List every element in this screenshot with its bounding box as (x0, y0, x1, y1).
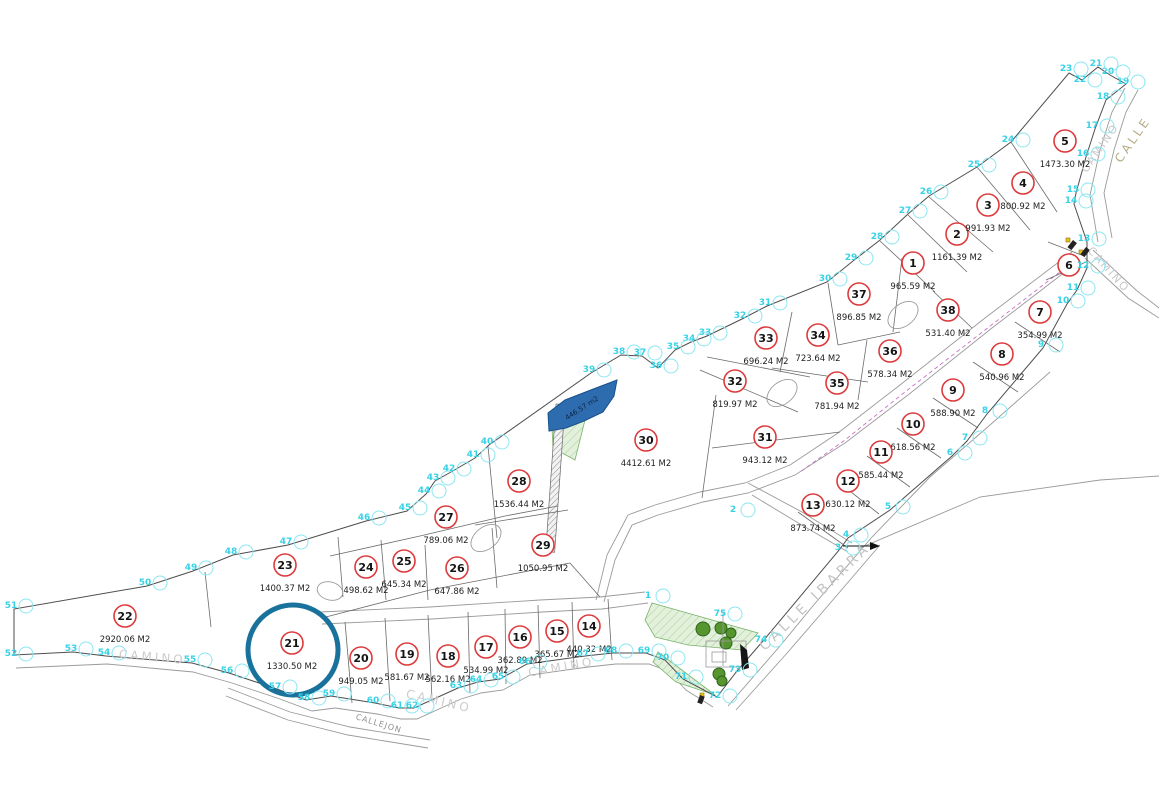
lot-marker-20[interactable]: 20949.05 M2 (338, 647, 383, 687)
vertex-number-1: 1 (645, 591, 651, 601)
lot-marker-34[interactable]: 34723.64 M2 (795, 324, 840, 364)
vertex-number-52: 52 (5, 649, 18, 659)
lot-marker-18[interactable]: 18562.16 M2 (425, 645, 470, 685)
vertex-point-68: 68 (605, 644, 633, 658)
lot-marker-1[interactable]: 1965.59 M2 (890, 252, 935, 292)
lot-marker-25[interactable]: 25645.34 M2 (381, 550, 426, 590)
lot-area-30: 4412.61 M2 (621, 459, 672, 469)
vertex-point-23: 23 (1060, 62, 1088, 76)
vertex-number-57: 57 (269, 682, 282, 692)
vertex-point-42: 42 (443, 462, 471, 476)
vertex-ring-25 (982, 158, 996, 172)
lot-number-26: 26 (449, 562, 465, 575)
lot-number-5: 5 (1061, 135, 1069, 148)
vertex-point-40: 40 (481, 435, 509, 449)
vertex-number-11: 11 (1067, 283, 1080, 293)
culdesac-1 (762, 374, 802, 412)
vertex-number-22: 22 (1074, 75, 1087, 85)
vertex-number-68: 68 (605, 646, 618, 656)
vertex-ring-27 (913, 204, 927, 218)
lot-line-35 (570, 563, 600, 597)
vertex-number-65: 65 (492, 672, 505, 682)
vertex-point-75: 75 (714, 607, 742, 621)
lot-number-13: 13 (805, 499, 820, 512)
lot-number-14: 14 (581, 620, 597, 633)
street-label-1: CALLE (1112, 114, 1154, 165)
lot-marker-30[interactable]: 304412.61 M2 (621, 429, 672, 469)
lamp-marker-0 (1066, 238, 1070, 242)
vertex-point-24: 24 (1002, 133, 1030, 147)
vertex-number-49: 49 (185, 563, 198, 573)
vertex-number-25: 25 (968, 160, 981, 170)
parcel-map: 446.57 m2CAMINOCALLECAMINOCALLE IBARRACA… (0, 0, 1159, 805)
vertex-ring-55 (198, 653, 212, 667)
road-line-2 (596, 515, 628, 600)
lot-area-27: 789.06 M2 (423, 536, 468, 546)
lot-marker-26[interactable]: 26647.86 M2 (434, 557, 479, 597)
vertex-number-12: 12 (1077, 261, 1090, 271)
map-canvas: 446.57 m2CAMINOCALLECAMINOCALLE IBARRACA… (0, 0, 1159, 805)
vertex-number-73: 73 (729, 665, 742, 675)
vertex-point-49: 49 (185, 561, 213, 575)
vertex-ring-24 (1016, 133, 1030, 147)
vertex-point-14: 14 (1065, 194, 1093, 208)
lot-marker-21[interactable]: 211330.50 M2 (267, 632, 318, 672)
junction-arrow-head (870, 542, 880, 550)
lot-area-19: 581.67 M2 (384, 673, 429, 683)
lot-area-32: 819.97 M2 (712, 400, 757, 410)
vertex-number-72: 72 (709, 691, 722, 701)
lot-marker-38[interactable]: 38531.40 M2 (925, 299, 970, 339)
lot-number-20: 20 (353, 652, 369, 665)
lot-marker-9[interactable]: 9588.90 M2 (930, 379, 975, 419)
vertex-ring-4 (854, 528, 868, 542)
vertex-number-27: 27 (899, 206, 912, 216)
vertex-number-5: 5 (885, 502, 891, 512)
vertex-number-36: 36 (650, 361, 663, 371)
vertex-ring-45 (413, 501, 427, 515)
lot-number-15: 15 (549, 625, 564, 638)
lot-area-11: 585.44 M2 (858, 471, 903, 481)
vertex-point-2: 2 (730, 503, 755, 517)
lot-number-4: 4 (1019, 177, 1027, 190)
lot-area-26: 647.86 M2 (434, 587, 479, 597)
vertex-ring-29 (859, 251, 873, 265)
vertex-number-15: 15 (1067, 185, 1080, 195)
lot-number-36: 36 (882, 345, 898, 358)
vertex-number-58: 58 (298, 693, 311, 703)
vertex-point-18: 18 (1097, 90, 1125, 104)
street-label-3: CALLE IBARRA (756, 540, 874, 654)
vertex-ring-30 (833, 272, 847, 286)
vertex-number-3: 3 (835, 543, 841, 553)
lot-marker-8[interactable]: 8540.96 M2 (979, 343, 1024, 383)
vertex-point-45: 45 (399, 501, 427, 515)
vertex-point-4: 4 (843, 528, 868, 542)
tree-icon-2 (726, 628, 736, 638)
vertex-number-30: 30 (819, 274, 832, 284)
vertex-point-25: 25 (968, 158, 996, 172)
lot-line-38 (428, 615, 432, 699)
vertex-number-63: 63 (450, 681, 463, 691)
vertex-ring-5 (896, 500, 910, 514)
lot-line-30 (425, 545, 428, 600)
vertex-number-45: 45 (399, 503, 412, 513)
vertex-number-10: 10 (1057, 296, 1070, 306)
lot-marker-3[interactable]: 3991.93 M2 (965, 194, 1010, 234)
vertex-number-28: 28 (871, 232, 884, 242)
road-line-6 (728, 372, 1050, 706)
vertex-number-56: 56 (221, 666, 234, 676)
lot-number-10: 10 (905, 418, 921, 431)
lot-area-3: 991.93 M2 (965, 224, 1010, 234)
vertex-number-70: 70 (657, 653, 670, 663)
vertex-point-6: 6 (947, 446, 972, 460)
vertex-number-54: 54 (98, 648, 111, 658)
vertex-point-8: 8 (982, 404, 1007, 418)
lot-area-33: 696.24 M2 (743, 357, 788, 367)
lot-number-2: 2 (953, 228, 961, 241)
culdesac-2 (466, 519, 506, 557)
vertex-ring-11 (1081, 281, 1095, 295)
lot-area-36: 578.34 M2 (867, 370, 912, 380)
vertex-number-24: 24 (1002, 135, 1015, 145)
tree-icon-3 (720, 637, 732, 649)
vertex-number-62: 62 (406, 701, 419, 711)
lot-number-32: 32 (727, 375, 742, 388)
vertex-number-47: 47 (280, 537, 293, 547)
lot-number-6: 6 (1065, 259, 1073, 272)
vertex-point-31: 31 (759, 296, 787, 310)
lot-marker-32[interactable]: 32819.97 M2 (712, 370, 757, 410)
street-label-4: CAMINO (118, 647, 186, 667)
vertex-number-66: 66 (519, 657, 532, 667)
vertex-number-35: 35 (667, 342, 680, 352)
lot-line-6 (893, 258, 902, 332)
lot-marker-24[interactable]: 24498.62 M2 (343, 556, 388, 596)
vertex-number-48: 48 (225, 547, 238, 557)
vertex-point-41: 41 (467, 448, 495, 462)
lot-number-19: 19 (399, 648, 414, 661)
vertex-number-44: 44 (418, 486, 431, 496)
vertex-number-50: 50 (139, 578, 152, 588)
vertex-point-10: 10 (1057, 294, 1085, 308)
lot-line-11 (858, 340, 867, 400)
vertex-ring-57 (283, 680, 297, 694)
lot-area-28: 1536.44 M2 (494, 500, 545, 510)
vertex-point-19: 19 (1117, 75, 1145, 89)
lot-area-13: 873.74 M2 (790, 524, 835, 534)
vertex-number-42: 42 (443, 464, 456, 474)
vertex-number-55: 55 (184, 655, 197, 665)
lot-marker-7[interactable]: 7354.99 M2 (1017, 301, 1062, 341)
lot-number-27: 27 (438, 511, 453, 524)
lot-number-24: 24 (358, 561, 374, 574)
lot-area-5: 1473.30 M2 (1040, 160, 1091, 170)
vertex-ring-22 (1088, 73, 1102, 87)
vertex-number-4: 4 (843, 530, 849, 540)
vertex-number-31: 31 (759, 298, 772, 308)
vertex-point-46: 46 (358, 511, 386, 525)
lot-number-11: 11 (873, 446, 888, 459)
vertex-point-56: 56 (221, 664, 249, 678)
vertex-ring-2 (741, 503, 755, 517)
lot-marker-35[interactable]: 35781.94 M2 (814, 372, 859, 412)
vertex-ring-75 (728, 607, 742, 621)
vertex-ring-59 (337, 687, 351, 701)
vertex-number-60: 60 (367, 696, 380, 706)
vertex-number-39: 39 (583, 365, 596, 375)
lot-number-35: 35 (829, 377, 844, 390)
vertex-ring-56 (235, 664, 249, 678)
lot-number-21: 21 (284, 637, 299, 650)
lot-marker-29[interactable]: 291050.95 M2 (518, 534, 569, 574)
vertex-number-6: 6 (947, 448, 953, 458)
lot-area-1: 965.59 M2 (890, 282, 935, 292)
vertex-ring-15 (1081, 183, 1095, 197)
lot-area-25: 645.34 M2 (381, 580, 426, 590)
vertex-ring-18 (1111, 90, 1125, 104)
lot-area-18: 562.16 M2 (425, 675, 470, 685)
lot-number-29: 29 (535, 539, 550, 552)
vertex-number-21: 21 (1090, 59, 1103, 69)
lot-marker-28[interactable]: 281536.44 M2 (494, 470, 545, 510)
vertex-number-69: 69 (638, 646, 651, 656)
lot-area-21: 1330.50 M2 (267, 662, 318, 672)
vertex-point-39: 39 (583, 363, 611, 377)
lot-number-1: 1 (909, 257, 917, 270)
vertex-ring-73 (743, 663, 757, 677)
culdesac-0 (883, 296, 923, 334)
vertex-number-74: 74 (755, 635, 768, 645)
vertex-point-13: 13 (1078, 232, 1106, 246)
lot-number-16: 16 (512, 631, 528, 644)
vertex-number-46: 46 (358, 513, 371, 523)
building-marker-2 (697, 695, 704, 704)
vertex-point-30: 30 (819, 272, 847, 286)
lot-marker-4[interactable]: 4800.92 M2 (1000, 172, 1045, 212)
lot-line-14 (702, 395, 716, 498)
lot-marker-37[interactable]: 37896.85 M2 (836, 283, 881, 323)
vertex-ring-13 (1092, 232, 1106, 246)
vertex-number-75: 75 (714, 609, 727, 619)
vertex-ring-40 (495, 435, 509, 449)
lot-marker-33[interactable]: 33696.24 M2 (743, 327, 788, 367)
vertex-ring-68 (619, 644, 633, 658)
vertex-point-50: 50 (139, 576, 167, 590)
lot-number-18: 18 (440, 650, 455, 663)
lot-area-23: 1400.37 M2 (260, 584, 311, 594)
vertex-number-14: 14 (1065, 196, 1078, 206)
vertex-number-67: 67 (577, 649, 590, 659)
vertex-number-20: 20 (1102, 67, 1115, 77)
lot-marker-23[interactable]: 231400.37 M2 (260, 554, 311, 594)
structure-inner (712, 652, 726, 662)
lot-area-10: 618.56 M2 (890, 443, 935, 453)
vertex-number-53: 53 (65, 644, 78, 654)
vertex-number-32: 32 (734, 311, 747, 321)
vertex-point-47: 47 (280, 535, 308, 549)
road-line-12 (16, 664, 713, 719)
vertex-number-9: 9 (1038, 340, 1044, 350)
lot-area-20: 949.05 M2 (338, 677, 383, 687)
vertex-point-1: 1 (645, 589, 670, 603)
lot-area-4: 800.92 M2 (1000, 202, 1045, 212)
lot-number-9: 9 (949, 384, 957, 397)
vertex-number-23: 23 (1060, 64, 1073, 74)
lot-number-30: 30 (638, 434, 654, 447)
vertex-ring-36 (664, 359, 678, 373)
lot-marker-10[interactable]: 10618.56 M2 (890, 413, 935, 453)
lot-line-31 (492, 528, 497, 588)
lot-line-37 (385, 618, 390, 701)
utility-line (800, 268, 1065, 472)
road-line-3 (604, 525, 632, 602)
vertex-number-38: 38 (613, 347, 626, 357)
lot-marker-31[interactable]: 31943.12 M2 (742, 426, 787, 466)
lot-number-25: 25 (396, 555, 411, 568)
lot-number-22: 22 (117, 610, 132, 623)
vertex-number-40: 40 (481, 437, 494, 447)
lot-number-7: 7 (1036, 306, 1044, 319)
vertex-number-51: 51 (5, 601, 18, 611)
road-line-17 (860, 476, 1159, 548)
vertex-ring-6 (958, 446, 972, 460)
tree-icon-5 (717, 676, 727, 686)
vertex-ring-1 (656, 589, 670, 603)
vertex-ring-19 (1131, 75, 1145, 89)
tree-icon-0 (696, 622, 710, 636)
vertex-ring-44 (432, 484, 446, 498)
lot-marker-19[interactable]: 19581.67 M2 (384, 643, 429, 683)
lot-area-34: 723.64 M2 (795, 354, 840, 364)
lot-marker-22[interactable]: 222920.06 M2 (100, 605, 151, 645)
vertex-point-27: 27 (899, 204, 927, 218)
vertex-number-7: 7 (962, 433, 968, 443)
lot-area-38: 531.40 M2 (925, 329, 970, 339)
lot-number-31: 31 (757, 431, 772, 444)
lot-area-12: 630.12 M2 (825, 500, 870, 510)
vertex-point-11: 11 (1067, 281, 1095, 295)
vertex-number-8: 8 (982, 406, 988, 416)
vertex-ring-28 (885, 230, 899, 244)
lot-number-17: 17 (478, 641, 493, 654)
tree-icon-1 (715, 622, 727, 634)
lot-number-33: 33 (758, 332, 773, 345)
lot-area-29: 1050.95 M2 (518, 564, 569, 574)
culdesac-3 (315, 579, 345, 603)
lot-area-31: 943.12 M2 (742, 456, 787, 466)
vertex-ring-33 (713, 326, 727, 340)
lot-number-3: 3 (984, 199, 992, 212)
lot-number-23: 23 (277, 559, 292, 572)
lot-number-8: 8 (998, 348, 1006, 361)
vertex-ring-70 (671, 651, 685, 665)
vertex-point-28: 28 (871, 230, 899, 244)
lot-area-9: 588.90 M2 (930, 409, 975, 419)
vertex-number-2: 2 (730, 505, 736, 515)
vertex-ring-37 (648, 346, 662, 360)
lot-marker-36[interactable]: 36578.34 M2 (867, 340, 912, 380)
vertex-number-64: 64 (470, 675, 483, 685)
lot-line-28 (338, 537, 343, 597)
vertex-number-29: 29 (845, 253, 858, 263)
vertex-number-16: 16 (1077, 149, 1090, 159)
vertex-number-17: 17 (1086, 121, 1099, 131)
lot-line-32 (205, 572, 211, 627)
lot-area-22: 2920.06 M2 (100, 635, 151, 645)
vertex-ring-72 (723, 689, 737, 703)
road-line-7 (736, 545, 880, 710)
lot-area-35: 781.94 M2 (814, 402, 859, 412)
lot-number-28: 28 (511, 475, 526, 488)
vertex-number-13: 13 (1078, 234, 1091, 244)
vertex-ring-32 (748, 309, 762, 323)
vertex-number-61: 61 (391, 701, 404, 711)
lot-number-37: 37 (851, 288, 866, 301)
vertex-number-43: 43 (427, 473, 440, 483)
lot-area-2: 1161.39 M2 (932, 253, 983, 263)
vertex-point-29: 29 (845, 251, 873, 265)
vertex-number-59: 59 (323, 689, 336, 699)
lot-number-34: 34 (810, 329, 826, 342)
vertex-ring-23 (1074, 62, 1088, 76)
vertex-ring-10 (1071, 294, 1085, 308)
lot-number-12: 12 (840, 475, 855, 488)
vertex-number-71: 71 (675, 672, 688, 682)
lot-number-38: 38 (940, 304, 955, 317)
vertex-number-18: 18 (1097, 92, 1110, 102)
lot-area-37: 896.85 M2 (836, 313, 881, 323)
lot-area-8: 540.96 M2 (979, 373, 1024, 383)
vertex-number-41: 41 (467, 450, 480, 460)
map-root: 446.57 m2CAMINOCALLECAMINOCALLE IBARRACA… (5, 57, 1159, 748)
vertex-number-26: 26 (920, 187, 933, 197)
